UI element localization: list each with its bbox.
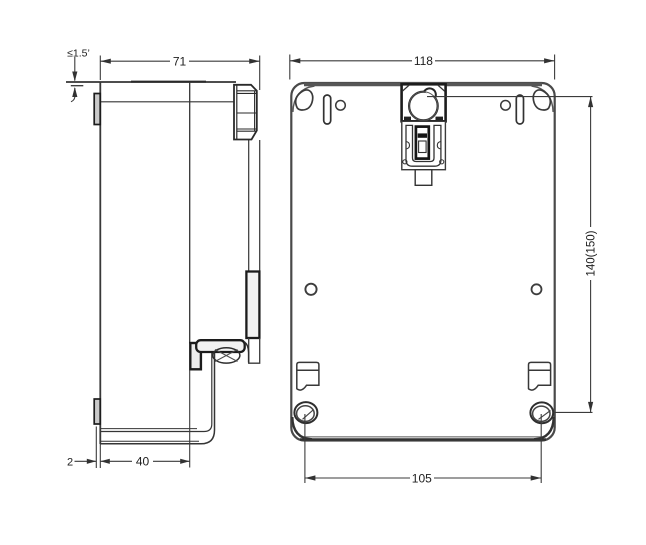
svg-text:118: 118: [414, 54, 433, 68]
svg-text:2: 2: [67, 456, 73, 468]
svg-text:105: 105: [412, 471, 432, 485]
svg-text:≤1.5’: ≤1.5’: [67, 48, 90, 60]
svg-text:140(150): 140(150): [586, 230, 598, 276]
svg-text:71: 71: [173, 54, 187, 68]
svg-text:40: 40: [136, 455, 150, 469]
